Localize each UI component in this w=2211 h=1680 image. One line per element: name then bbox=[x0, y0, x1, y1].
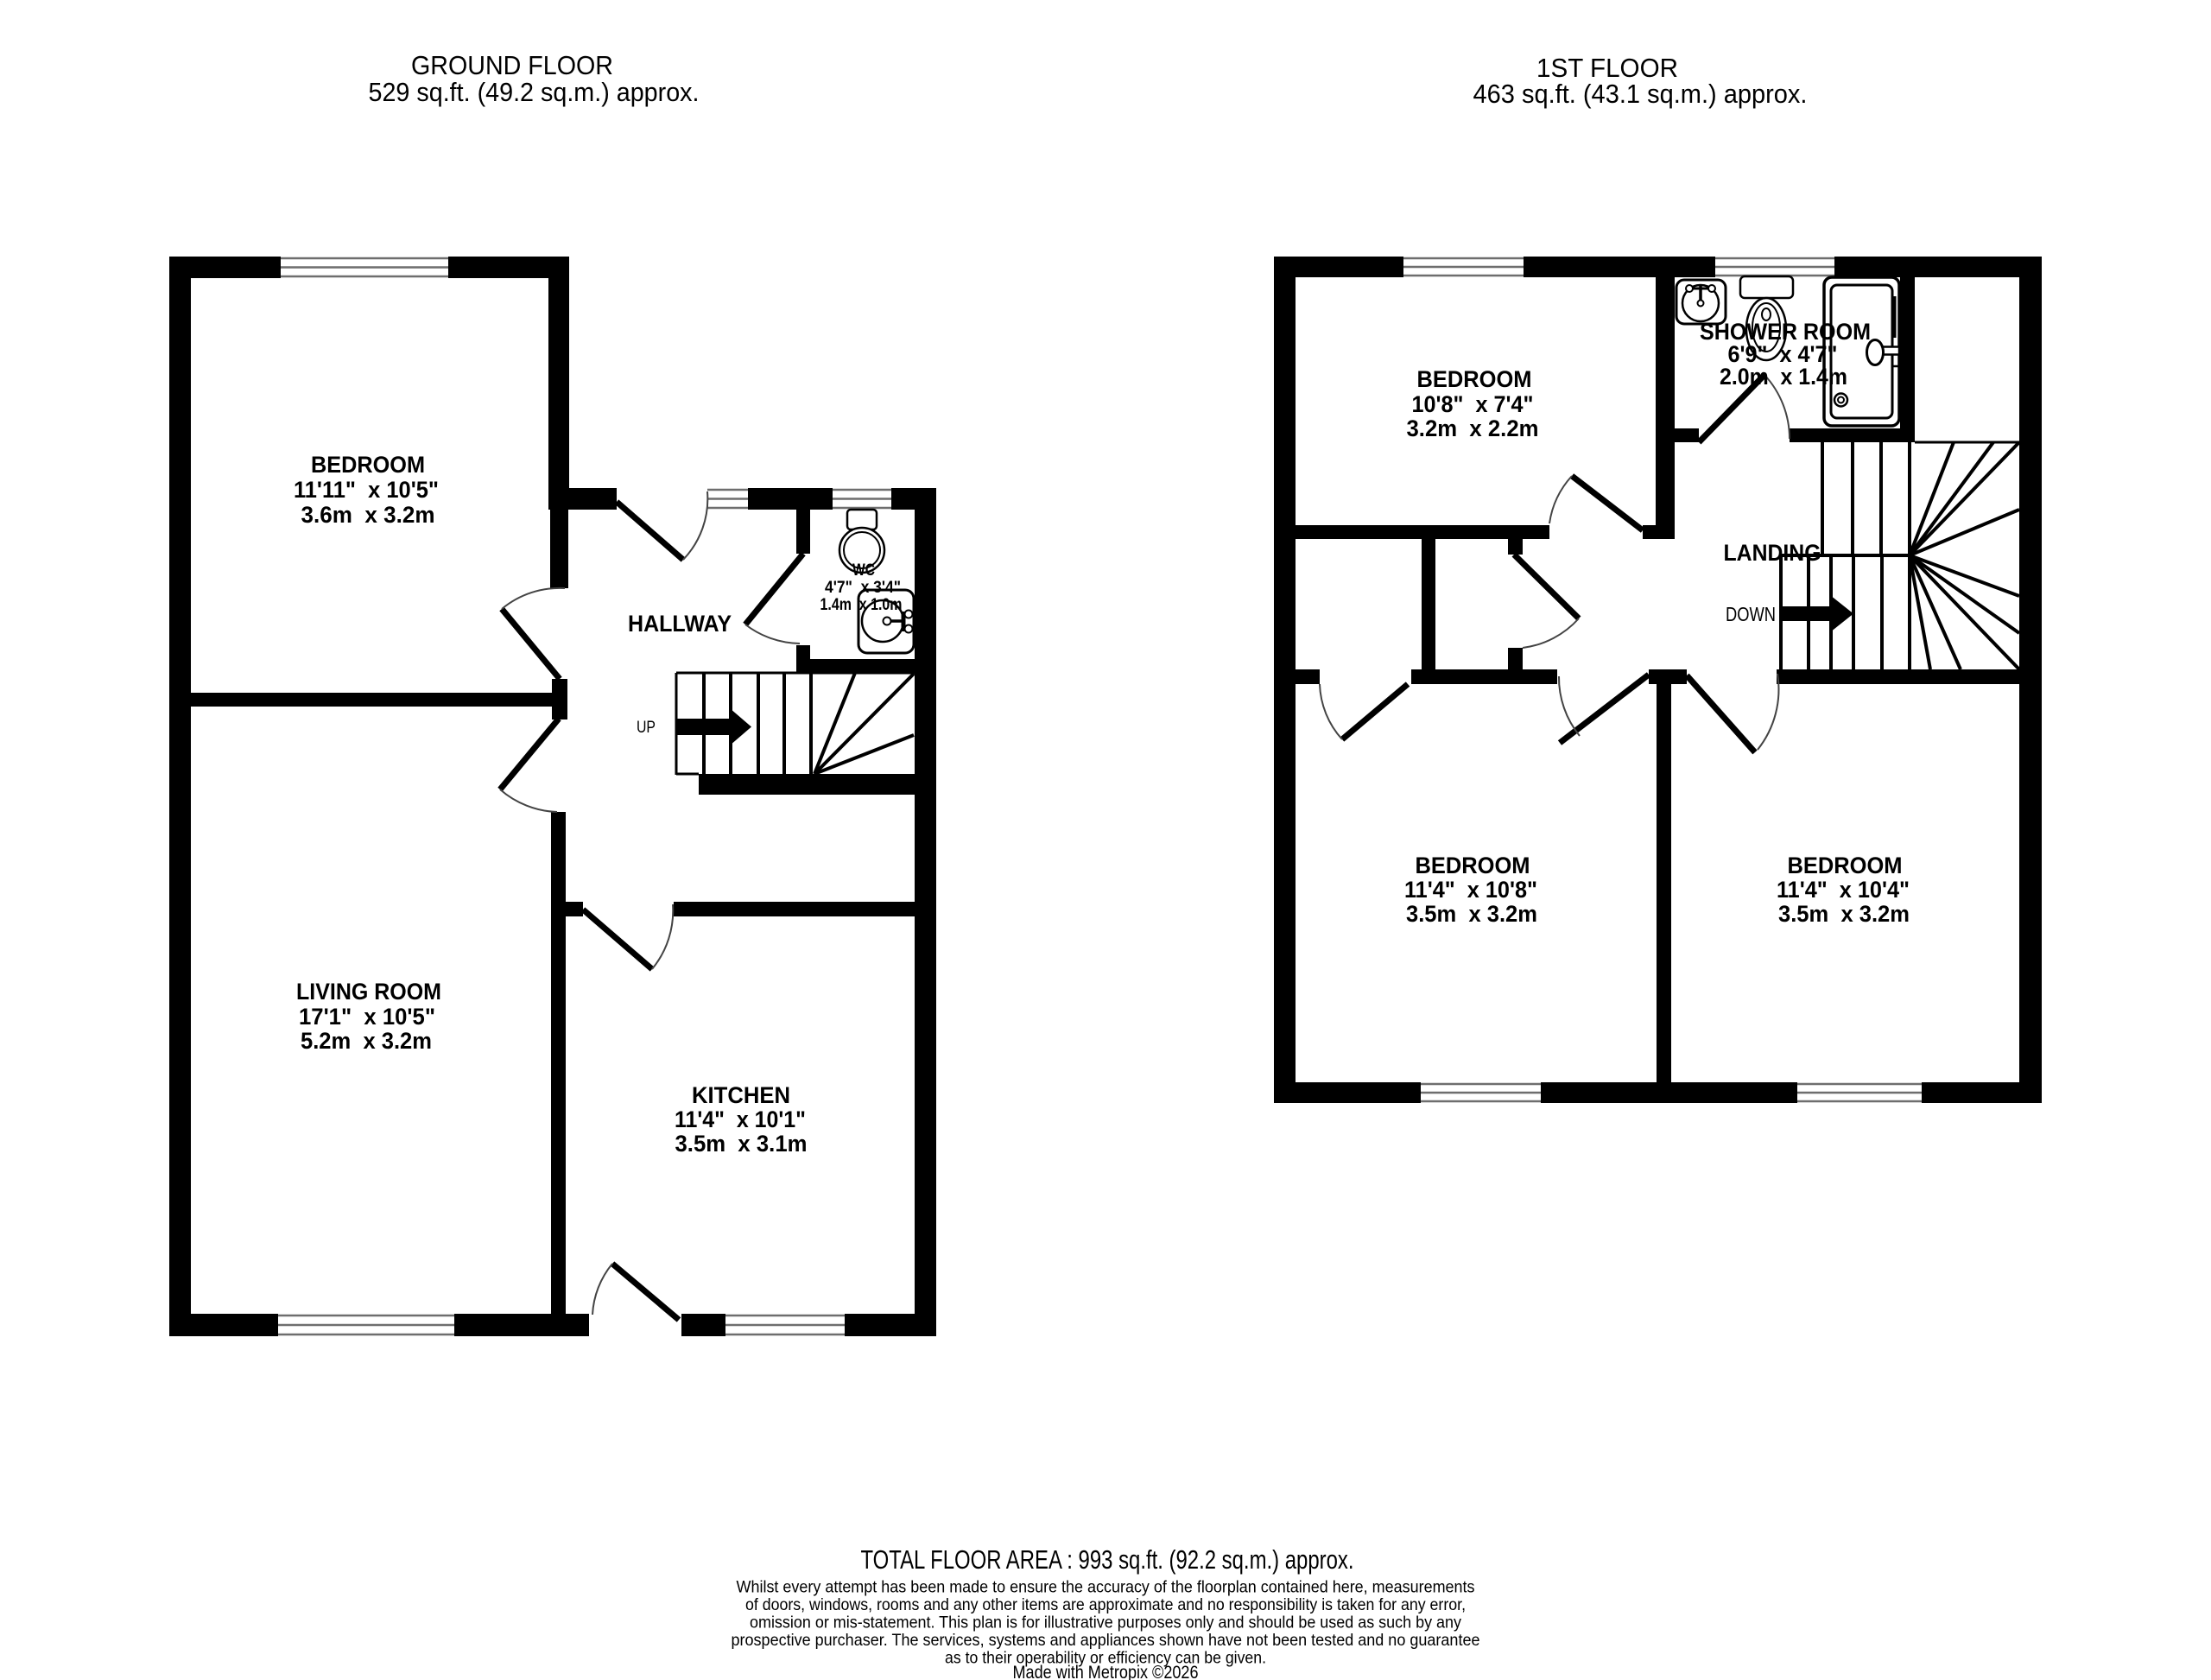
svg-text:BEDROOM: BEDROOM bbox=[311, 452, 425, 478]
svg-text:KITCHEN: KITCHEN bbox=[692, 1082, 790, 1108]
svg-text:omission or mis-statement. Thi: omission or mis-statement. This plan is … bbox=[750, 1613, 1461, 1632]
svg-text:529 sq.ft. (49.2 sq.m.) approx: 529 sq.ft. (49.2 sq.m.) approx. bbox=[369, 77, 700, 107]
svg-text:BEDROOM: BEDROOM bbox=[1416, 853, 1530, 878]
svg-text:4'7" x 3'4": 4'7" x 3'4" bbox=[825, 579, 901, 597]
svg-text:prospective purchaser. The ser: prospective purchaser. The services, sys… bbox=[732, 1631, 1480, 1650]
svg-text:11'4" x 10'4": 11'4" x 10'4" bbox=[1777, 877, 1910, 903]
svg-text:3.5m x 3.1m: 3.5m x 3.1m bbox=[675, 1131, 808, 1157]
svg-text:Made with Metropix ©2026: Made with Metropix ©2026 bbox=[1013, 1663, 1199, 1680]
svg-text:3.5m x 3.2m: 3.5m x 3.2m bbox=[1778, 901, 1910, 927]
svg-text:LANDING: LANDING bbox=[1724, 540, 1821, 566]
svg-text:DOWN: DOWN bbox=[1726, 603, 1776, 625]
svg-text:11'4" x 10'8": 11'4" x 10'8" bbox=[1404, 877, 1537, 903]
svg-text:1.4m x 1.0m: 1.4m x 1.0m bbox=[820, 596, 903, 614]
svg-text:463 sq.ft. (43.1 sq.m.) approx: 463 sq.ft. (43.1 sq.m.) approx. bbox=[1473, 79, 1808, 109]
svg-text:17'1" x 10'5": 17'1" x 10'5" bbox=[299, 1004, 435, 1030]
svg-text:LIVING ROOM: LIVING ROOM bbox=[296, 979, 441, 1005]
svg-text:HALLWAY: HALLWAY bbox=[628, 611, 732, 637]
svg-text:3.6m x 3.2m: 3.6m x 3.2m bbox=[301, 502, 435, 528]
svg-text:11'11" x 10'5": 11'11" x 10'5" bbox=[294, 477, 439, 503]
svg-text:BEDROOM: BEDROOM bbox=[1788, 853, 1903, 878]
svg-text:WC: WC bbox=[852, 561, 875, 580]
svg-text:5.2m x 3.2m: 5.2m x 3.2m bbox=[301, 1028, 432, 1054]
svg-text:BEDROOM: BEDROOM bbox=[1417, 366, 1532, 392]
svg-text:of doors, windows, rooms and a: of doors, windows, rooms and any other i… bbox=[745, 1595, 1466, 1614]
svg-text:UP: UP bbox=[637, 719, 656, 737]
svg-text:Whilst every attempt has been: Whilst every attempt has been made to en… bbox=[737, 1578, 1475, 1597]
svg-text:3.2m x 2.2m: 3.2m x 2.2m bbox=[1407, 415, 1539, 441]
svg-text:11'4" x 10'1": 11'4" x 10'1" bbox=[675, 1106, 806, 1132]
svg-text:2.0m x 1.4m: 2.0m x 1.4m bbox=[1720, 364, 1847, 390]
svg-text:GROUND FLOOR: GROUND FLOOR bbox=[411, 50, 613, 80]
svg-text:TOTAL FLOOR AREA : 993 sq.ft.: TOTAL FLOOR AREA : 993 sq.ft. (92.2 sq.m… bbox=[861, 1544, 1354, 1575]
svg-text:10'8" x 7'4": 10'8" x 7'4" bbox=[1412, 391, 1534, 417]
svg-text:3.5m x 3.2m: 3.5m x 3.2m bbox=[1406, 901, 1537, 927]
